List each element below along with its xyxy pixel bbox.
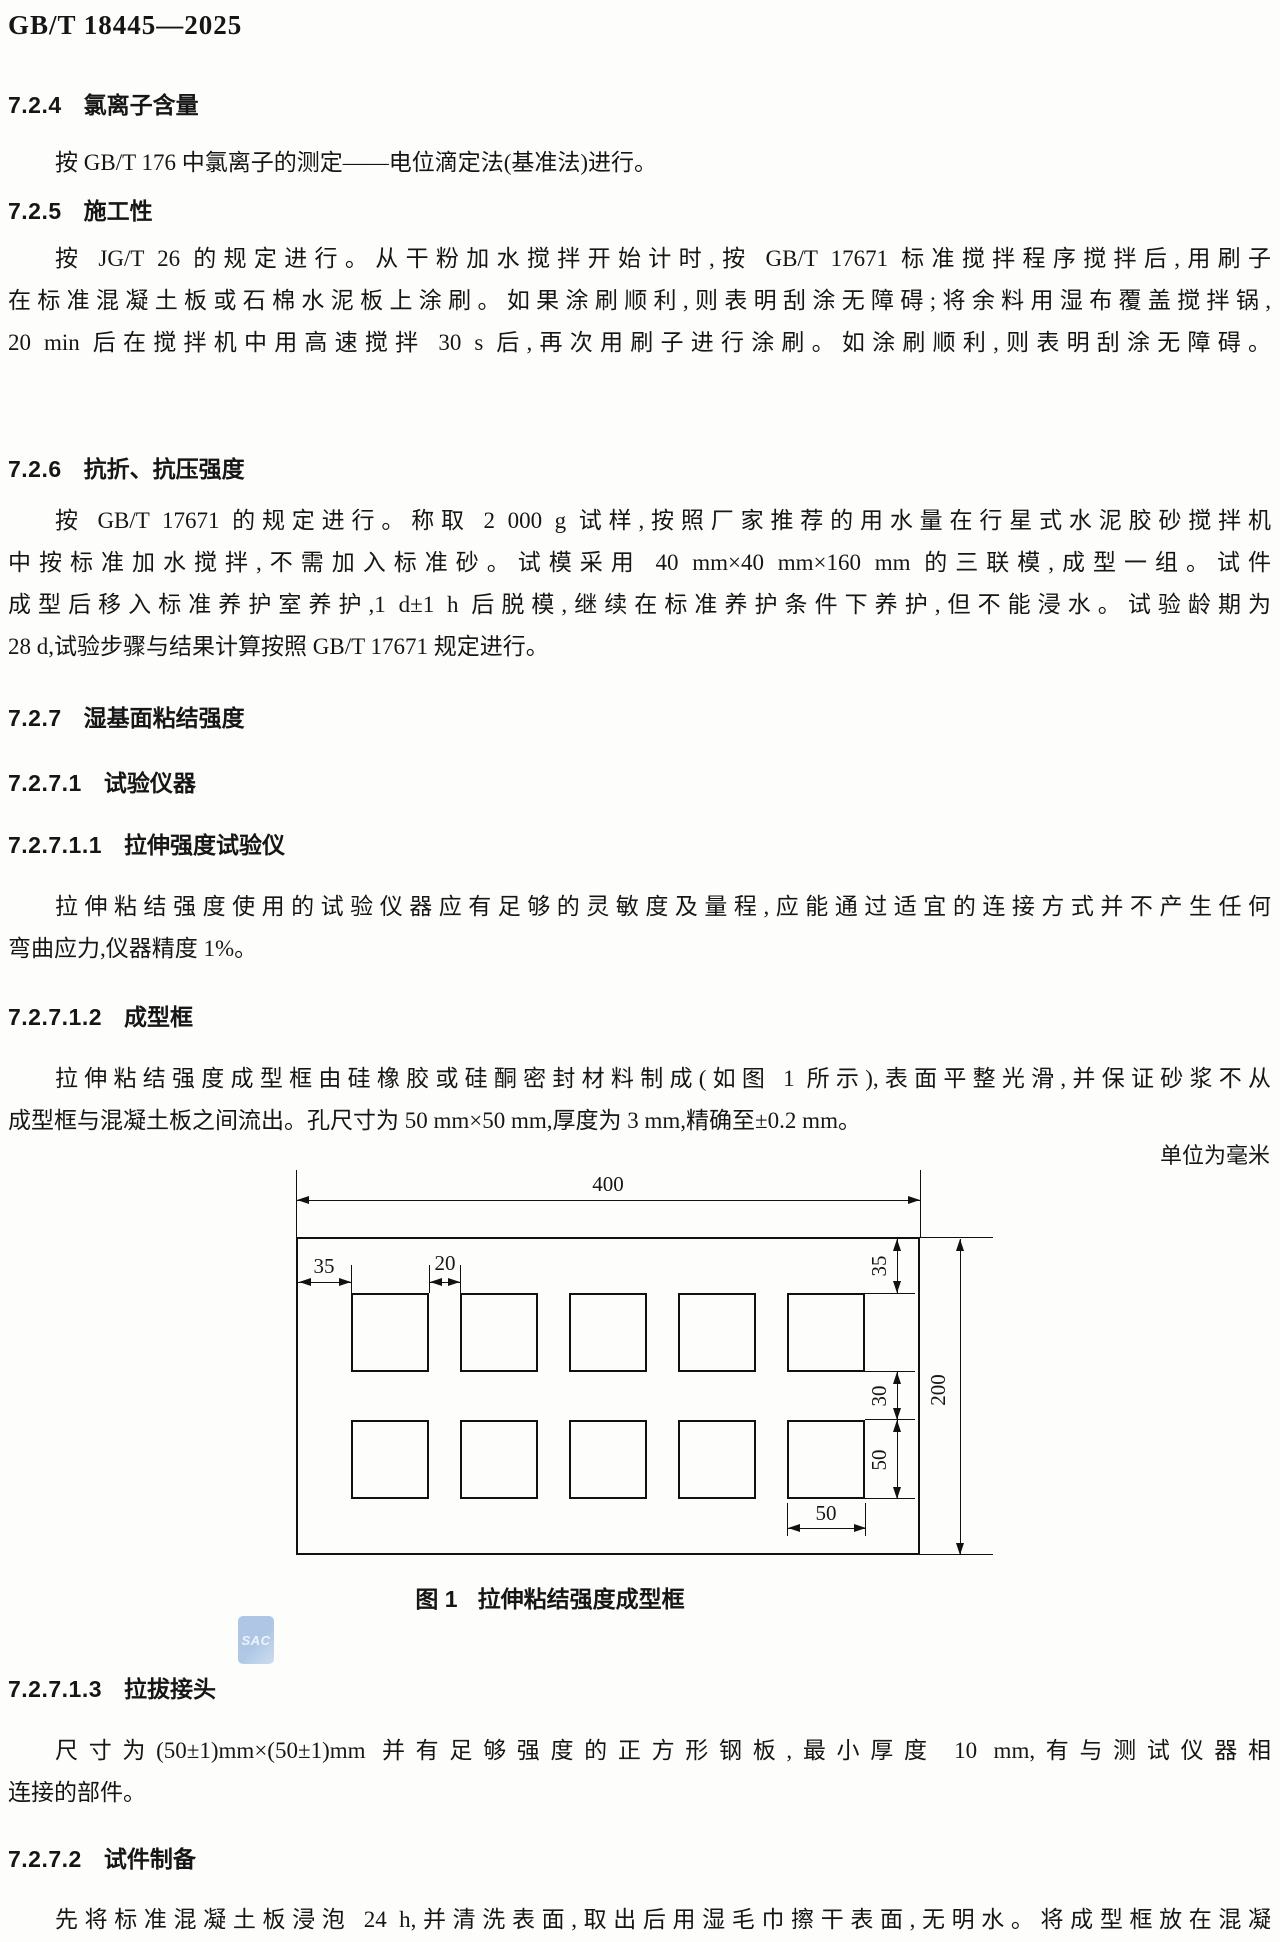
paragraph: 拉伸粘结强度成型框由硅橡胶或硅酮密封材料制成(如图 1 所示),表面平整光滑,并… [8, 1058, 1271, 1142]
text-line: 成型框与混凝土板之间流出。孔尺寸为 50 mm×50 mm,厚度为 3 mm,精… [8, 1100, 1271, 1142]
heading-7-2-4: 7.2.4氯离子含量 [8, 86, 199, 120]
clause-title: 拉拔接头 [124, 1676, 216, 1702]
clause-number: 7.2.6 [8, 456, 62, 482]
text-line: 连接的部件。 [8, 1772, 1271, 1814]
dim-label-hole-width: 50 [787, 1502, 865, 1524]
text-line: 20 min 后在搅拌机中用高速搅拌 30 s 后,再次用刷子进行涂刷。如涂刷顺… [8, 322, 1271, 364]
dim-label-hole-gap: 20 [428, 1252, 462, 1274]
frame-hole [351, 1293, 429, 1372]
frame-hole [569, 1293, 647, 1372]
text-line: 弯曲应力,仪器精度 1%。 [8, 928, 1271, 970]
frame-hole [678, 1293, 756, 1372]
text-line: 拉伸粘结强度使用的试验仪器应有足够的灵敏度及量程,应能通过适宜的连接方式并不产生… [8, 886, 1271, 928]
clause-title: 成型框 [124, 1004, 193, 1030]
clause-title: 拉伸强度试验仪 [124, 832, 285, 858]
dim-label-hole-height: 50 [868, 1440, 890, 1480]
extension-line [920, 1170, 921, 1237]
figure-molding-frame: 400 35 20 35 [296, 1170, 996, 1570]
arrowhead-right [448, 1278, 460, 1286]
figure-caption-title: 拉伸粘结强度成型框 [478, 1586, 685, 1612]
frame-hole [787, 1293, 865, 1372]
dim-line-400 [296, 1200, 921, 1201]
sac-watermark-logo: SAC [238, 1616, 274, 1664]
clause-title: 施工性 [84, 198, 153, 224]
heading-7-2-6: 7.2.6抗折、抗压强度 [8, 450, 245, 484]
clause-number: 7.2.7 [8, 705, 62, 731]
heading-7-2-5: 7.2.5施工性 [8, 192, 153, 226]
text-line: 按 GB/T 176 中氯离子的测定——电位滴定法(基准法)进行。 [8, 142, 1271, 184]
extension-line [920, 1237, 993, 1238]
extension-line [865, 1371, 915, 1372]
heading-7-2-7-1-1: 7.2.7.1.1拉伸强度试验仪 [8, 826, 285, 860]
paragraph: 按 GB/T 176 中氯离子的测定——电位滴定法(基准法)进行。 [8, 142, 1271, 184]
clause-number: 7.2.7.2 [8, 1846, 82, 1872]
dim-line-200 [960, 1239, 961, 1555]
standard-code: GB/T 18445—2025 [8, 10, 242, 41]
clause-title: 试件制备 [104, 1846, 196, 1872]
paragraph: 按 GB/T 17671 的规定进行。称取 2 000 g 试样,按照厂家推荐的… [8, 500, 1271, 668]
extension-line [865, 1293, 915, 1294]
document-page: GB/T 18445—2025 7.2.4氯离子含量 按 GB/T 176 中氯… [0, 0, 1280, 1942]
frame-hole [569, 1420, 647, 1499]
heading-7-2-7-2: 7.2.7.2试件制备 [8, 1840, 196, 1874]
frame-hole [678, 1420, 756, 1499]
text-line: 先将标准混凝土板浸泡 24 h,并清洗表面,取出后用湿毛巾擦干表面,无明水。将成… [8, 1899, 1271, 1941]
arrowhead-right [908, 1196, 920, 1204]
clause-number: 7.2.7.1.3 [8, 1676, 102, 1702]
clause-title: 试验仪器 [104, 770, 196, 796]
clause-title: 氯离子含量 [84, 92, 199, 118]
clause-number: 7.2.5 [8, 198, 62, 224]
figure-caption: 图 1拉伸粘结强度成型框 [180, 1580, 920, 1614]
text-line: 尺寸为(50±1)mm×(50±1)mm 并有足够强度的正方形钢板,最小厚度 1… [8, 1730, 1271, 1772]
arrowhead-up [893, 1420, 901, 1432]
clause-number: 7.2.7.1 [8, 770, 82, 796]
text-line: 成型后移入标准养护室养护,1 d±1 h 后脱模,继续在标准养护条件下养护,但不… [8, 584, 1271, 626]
arrowhead-down [893, 1487, 901, 1499]
dim-label-top-margin: 35 [868, 1246, 890, 1286]
arrowhead-up [893, 1239, 901, 1251]
heading-7-2-7-1-2: 7.2.7.1.2成型框 [8, 998, 193, 1032]
paragraph: 按 JG/T 26 的规定进行。从干粉加水搅拌开始计时,按 GB/T 17671… [8, 238, 1271, 364]
text-line: 按 GB/T 17671 的规定进行。称取 2 000 g 试样,按照厂家推荐的… [8, 500, 1271, 542]
clause-number: 7.2.7.1.1 [8, 832, 102, 858]
arrowhead-down [893, 1281, 901, 1293]
arrowhead-right [339, 1278, 351, 1286]
heading-7-2-7-1: 7.2.7.1试验仪器 [8, 764, 196, 798]
frame-hole [460, 1420, 538, 1499]
dim-label-total-width: 400 [296, 1173, 920, 1195]
text-line: 按 JG/T 26 的规定进行。从干粉加水搅拌开始计时,按 GB/T 17671… [8, 238, 1271, 280]
clause-number: 7.2.7.1.2 [8, 1004, 102, 1030]
arrowhead-down [956, 1543, 964, 1555]
arrowhead-left [297, 1196, 309, 1204]
clause-title: 湿基面粘结强度 [84, 705, 245, 731]
text-line: 在标准混凝土板或石棉水泥板上涂刷。如果涂刷顺利,则表明刮涂无障碍;将余料用湿布覆… [8, 280, 1271, 322]
paragraph: 拉伸粘结强度使用的试验仪器应有足够的灵敏度及量程,应能通过适宜的连接方式并不产生… [8, 886, 1271, 970]
clause-title: 抗折、抗压强度 [84, 456, 245, 482]
paragraph: 尺寸为(50±1)mm×(50±1)mm 并有足够强度的正方形钢板,最小厚度 1… [8, 1730, 1271, 1814]
text-line: 中按标准加水搅拌,不需加入标准砂。试模采用 40 mm×40 mm×160 mm… [8, 542, 1271, 584]
arrowhead-up [956, 1239, 964, 1251]
unit-note: 单位为毫米 [1160, 1138, 1270, 1170]
extension-line [865, 1419, 915, 1420]
arrowhead-up [893, 1372, 901, 1384]
heading-7-2-7: 7.2.7湿基面粘结强度 [8, 699, 245, 733]
frame-hole [787, 1420, 865, 1499]
text-line: 28 d,试验步骤与结果计算按照 GB/T 17671 规定进行。 [8, 626, 1271, 668]
arrowhead-left [299, 1278, 311, 1286]
dim-label-row-gap: 30 [868, 1376, 890, 1416]
text-line: 拉伸粘结强度成型框由硅橡胶或硅酮密封材料制成(如图 1 所示),表面平整光滑,并… [8, 1058, 1271, 1100]
frame-hole [460, 1293, 538, 1372]
paragraph: 先将标准混凝土板浸泡 24 h,并清洗表面,取出后用湿毛巾擦干表面,无明水。将成… [8, 1899, 1271, 1941]
arrowhead-left [788, 1524, 800, 1532]
heading-7-2-7-1-3: 7.2.7.1.3拉拔接头 [8, 1670, 216, 1704]
extension-line [865, 1498, 915, 1499]
figure-caption-number: 图 1 [415, 1586, 457, 1612]
dim-label-left-margin: 35 [296, 1255, 352, 1277]
frame-hole [351, 1420, 429, 1499]
dim-label-total-height: 200 [927, 1362, 949, 1418]
arrowhead-down [893, 1408, 901, 1420]
arrowhead-left [430, 1278, 442, 1286]
arrowhead-right [854, 1524, 866, 1532]
clause-number: 7.2.4 [8, 92, 62, 118]
